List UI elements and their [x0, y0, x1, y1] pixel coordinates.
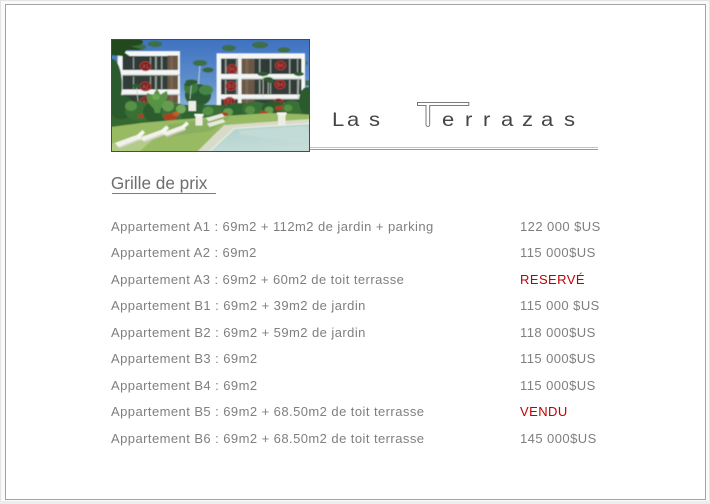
svg-text:B6: B6: [277, 63, 284, 69]
svg-text:A2: A2: [142, 84, 149, 90]
svg-text:B4: B4: [277, 82, 284, 88]
svg-text:A1: A1: [142, 64, 149, 70]
svg-text:B5: B5: [229, 67, 236, 73]
svg-text:B3: B3: [228, 84, 235, 90]
